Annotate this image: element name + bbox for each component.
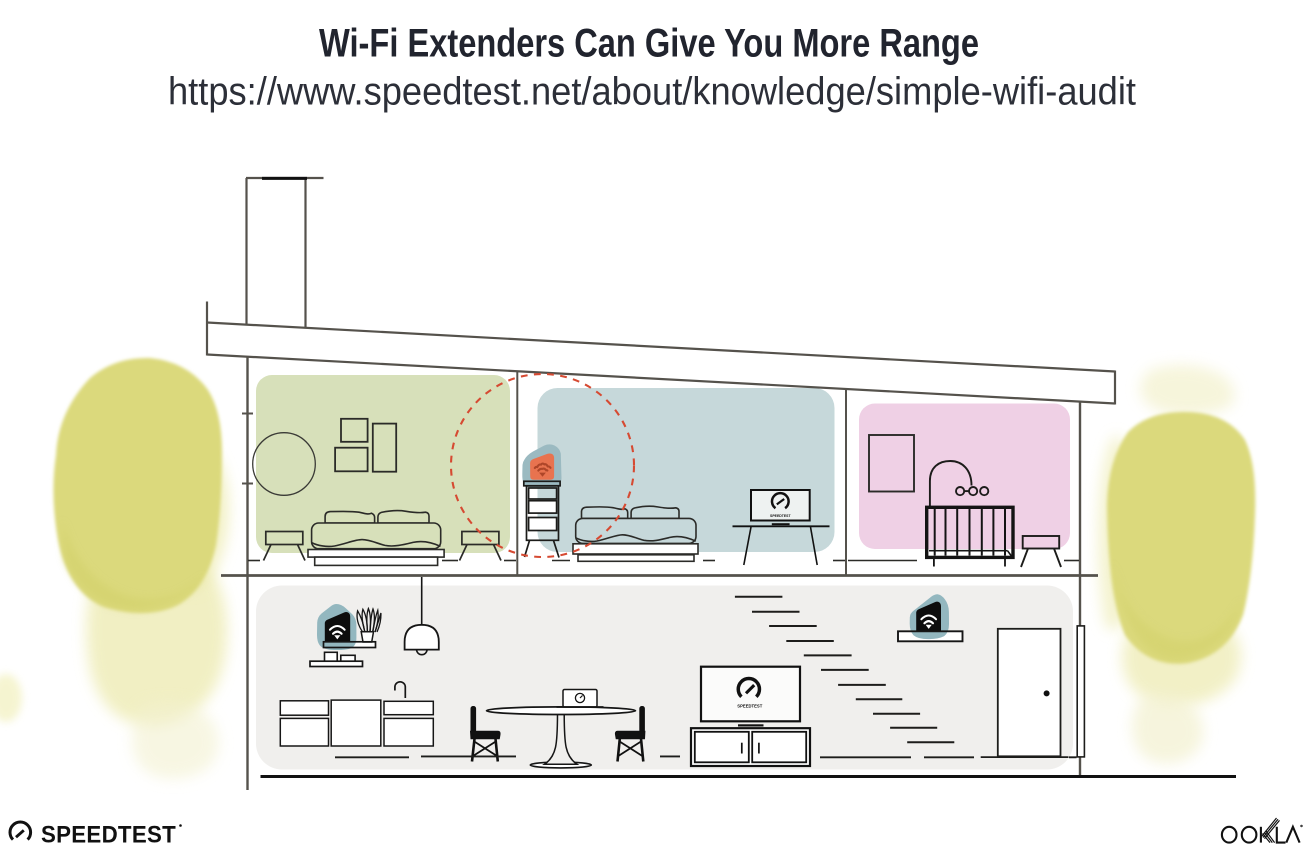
- svg-text:SPEEDTEST: SPEEDTEST: [41, 822, 176, 849]
- svg-text:SPEEDTEST: SPEEDTEST: [770, 514, 791, 518]
- svg-text:Wi-Fi Extenders Can Give You M: Wi-Fi Extenders Can Give You More Range: [319, 22, 979, 66]
- svg-text:SPEEDTEST: SPEEDTEST: [737, 703, 762, 708]
- svg-text:https://www.speedtest.net/abou: https://www.speedtest.net/about/knowledg…: [168, 71, 1136, 114]
